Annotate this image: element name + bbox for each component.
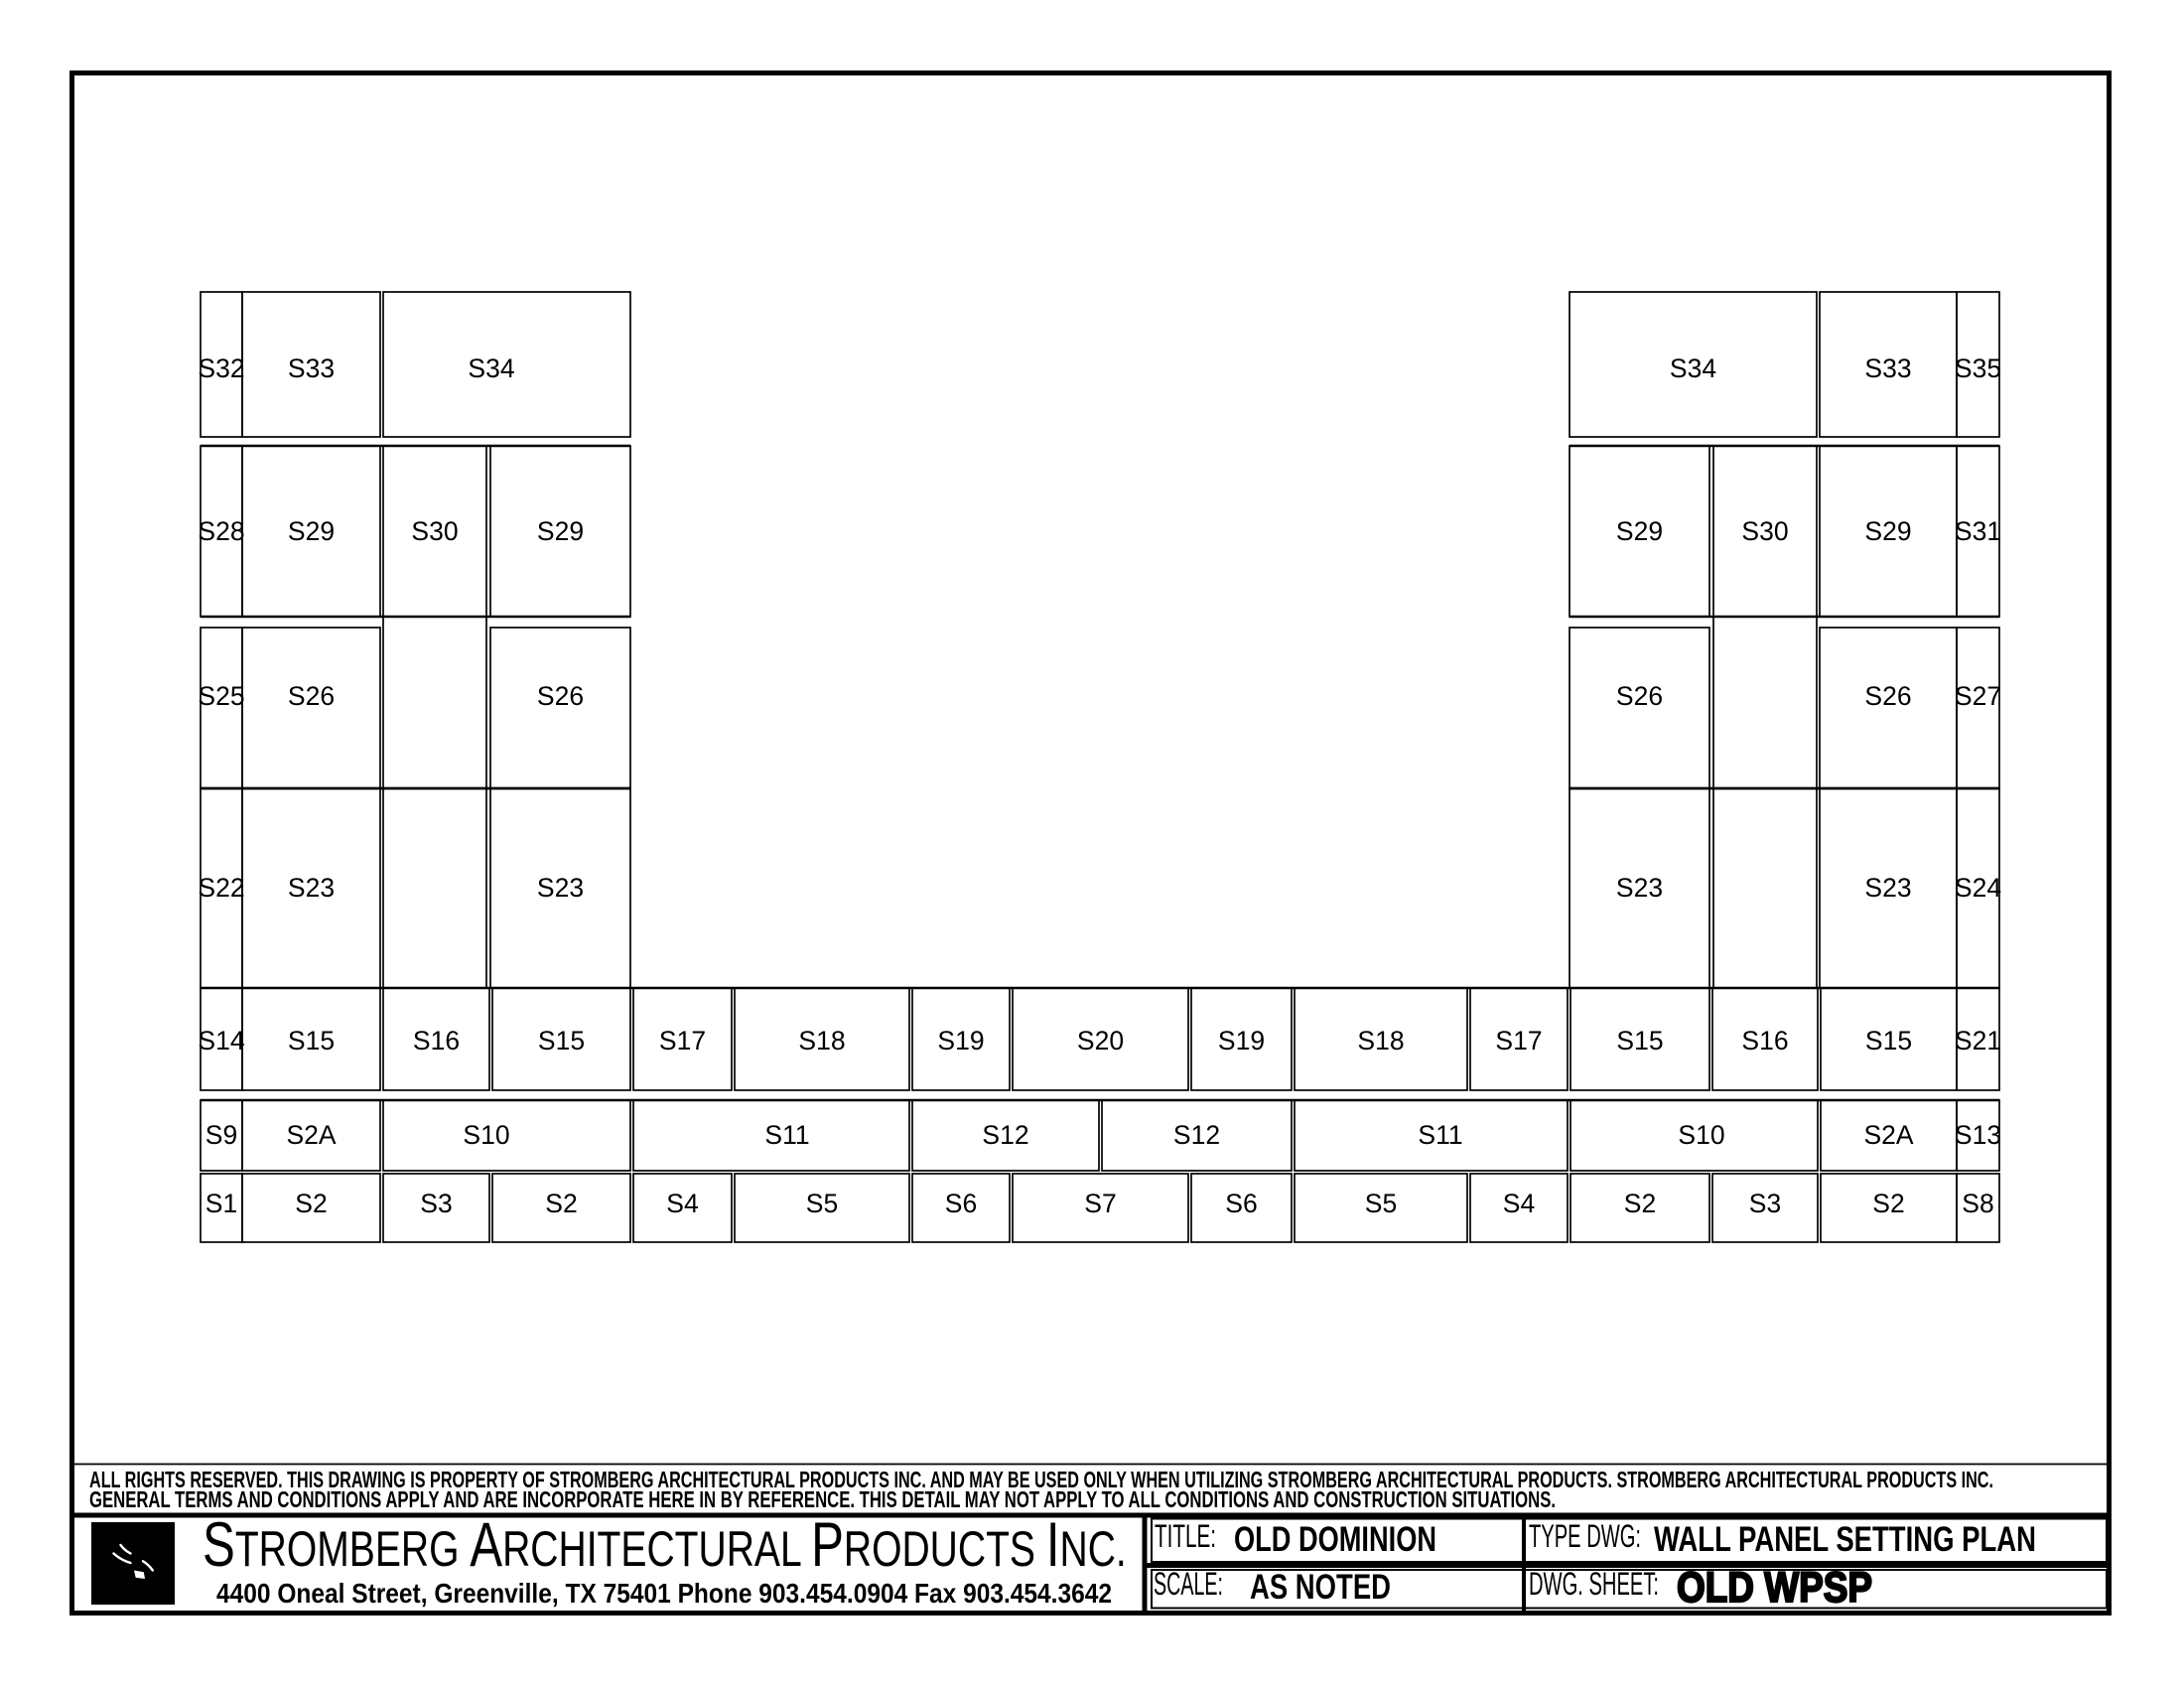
- svg-text:S26: S26: [1616, 681, 1663, 711]
- svg-text:S22: S22: [198, 873, 244, 903]
- svg-text:S23: S23: [1864, 873, 1911, 903]
- svg-text:S2: S2: [545, 1189, 577, 1218]
- svg-text:S6: S6: [1225, 1189, 1257, 1218]
- svg-text:S28: S28: [198, 516, 244, 546]
- svg-text:S7: S7: [1084, 1189, 1116, 1218]
- svg-text:S2A: S2A: [286, 1120, 336, 1150]
- svg-text:AS NOTED: AS NOTED: [1250, 1568, 1391, 1607]
- svg-text:S29: S29: [1616, 516, 1663, 546]
- svg-text:S32: S32: [198, 353, 244, 383]
- svg-text:S33: S33: [1864, 353, 1911, 383]
- svg-text:S27: S27: [1955, 681, 2001, 711]
- svg-text:S29: S29: [537, 516, 584, 546]
- svg-text:S25: S25: [198, 681, 244, 711]
- svg-text:S16: S16: [1741, 1026, 1788, 1055]
- svg-text:S30: S30: [1741, 516, 1788, 546]
- svg-text:S4: S4: [666, 1189, 698, 1218]
- svg-text:S16: S16: [413, 1026, 460, 1055]
- svg-text:S17: S17: [659, 1026, 706, 1055]
- svg-text:S2: S2: [1872, 1189, 1904, 1218]
- svg-text:S29: S29: [288, 516, 335, 546]
- svg-text:S23: S23: [288, 873, 335, 903]
- svg-text:S1: S1: [205, 1189, 237, 1218]
- svg-text:S13: S13: [1955, 1120, 2001, 1150]
- svg-text:S9: S9: [205, 1120, 237, 1150]
- svg-text:WALL PANEL SETTING PLAN: WALL PANEL SETTING PLAN: [1654, 1520, 2036, 1559]
- svg-text:S18: S18: [1357, 1026, 1404, 1055]
- svg-text:S11: S11: [1418, 1120, 1462, 1150]
- svg-text:S21: S21: [1955, 1026, 2001, 1055]
- svg-text:S8: S8: [1962, 1189, 1993, 1218]
- svg-text:S26: S26: [1864, 681, 1911, 711]
- svg-text:S15: S15: [288, 1026, 335, 1055]
- svg-text:S31: S31: [1955, 516, 2001, 546]
- svg-text:S4: S4: [1503, 1189, 1535, 1218]
- svg-text:S17: S17: [1495, 1026, 1542, 1055]
- svg-text:S2: S2: [295, 1189, 327, 1218]
- svg-text:S18: S18: [798, 1026, 845, 1055]
- svg-text:OLD WPSP: OLD WPSP: [1677, 1564, 1872, 1612]
- svg-text:S10: S10: [463, 1120, 509, 1150]
- svg-text:GENERAL TERMS AND CONDITIONS A: GENERAL TERMS AND CONDITIONS APPLY AND A…: [89, 1486, 1556, 1512]
- svg-text:S11: S11: [764, 1120, 809, 1150]
- svg-text:S12: S12: [982, 1120, 1028, 1150]
- svg-text:S10: S10: [1678, 1120, 1724, 1150]
- svg-text:S33: S33: [288, 353, 335, 383]
- svg-text:4400 Oneal Street, Greenville,: 4400 Oneal Street, Greenville, TX 75401 …: [216, 1578, 1112, 1609]
- svg-text:S19: S19: [1218, 1026, 1265, 1055]
- svg-text:S34: S34: [1670, 353, 1716, 383]
- svg-text:S5: S5: [806, 1189, 838, 1218]
- svg-text:S5: S5: [1365, 1189, 1397, 1218]
- svg-text:S14: S14: [198, 1026, 244, 1055]
- svg-text:S19: S19: [937, 1026, 984, 1055]
- svg-text:S15: S15: [538, 1026, 585, 1055]
- svg-text:OLD DOMINION: OLD DOMINION: [1234, 1520, 1436, 1559]
- svg-text:DWG. SHEET:: DWG. SHEET:: [1529, 1566, 1659, 1602]
- svg-text:S24: S24: [1955, 873, 2001, 903]
- svg-text:S29: S29: [1864, 516, 1911, 546]
- svg-text:S20: S20: [1077, 1026, 1124, 1055]
- svg-text:S23: S23: [1616, 873, 1663, 903]
- svg-text:S3: S3: [1749, 1189, 1781, 1218]
- svg-text:S34: S34: [468, 353, 514, 383]
- svg-text:TITLE:: TITLE:: [1155, 1518, 1216, 1554]
- svg-text:S12: S12: [1173, 1120, 1220, 1150]
- svg-text:S30: S30: [411, 516, 458, 546]
- svg-text:S15: S15: [1865, 1026, 1912, 1055]
- svg-text:S6: S6: [945, 1189, 977, 1218]
- svg-text:S2: S2: [1624, 1189, 1656, 1218]
- svg-text:S35: S35: [1955, 353, 2001, 383]
- svg-text:S23: S23: [537, 873, 584, 903]
- svg-text:TYPE DWG:: TYPE DWG:: [1529, 1518, 1641, 1554]
- svg-text:S2A: S2A: [1863, 1120, 1913, 1150]
- svg-text:STROMBERG ARCHITECTURAL PRODUC: STROMBERG ARCHITECTURAL PRODUCTS INC.: [203, 1509, 1127, 1579]
- svg-text:S26: S26: [288, 681, 335, 711]
- svg-text:S26: S26: [537, 681, 584, 711]
- svg-text:S3: S3: [420, 1189, 452, 1218]
- svg-text:SCALE:: SCALE:: [1154, 1566, 1223, 1602]
- svg-text:S15: S15: [1616, 1026, 1663, 1055]
